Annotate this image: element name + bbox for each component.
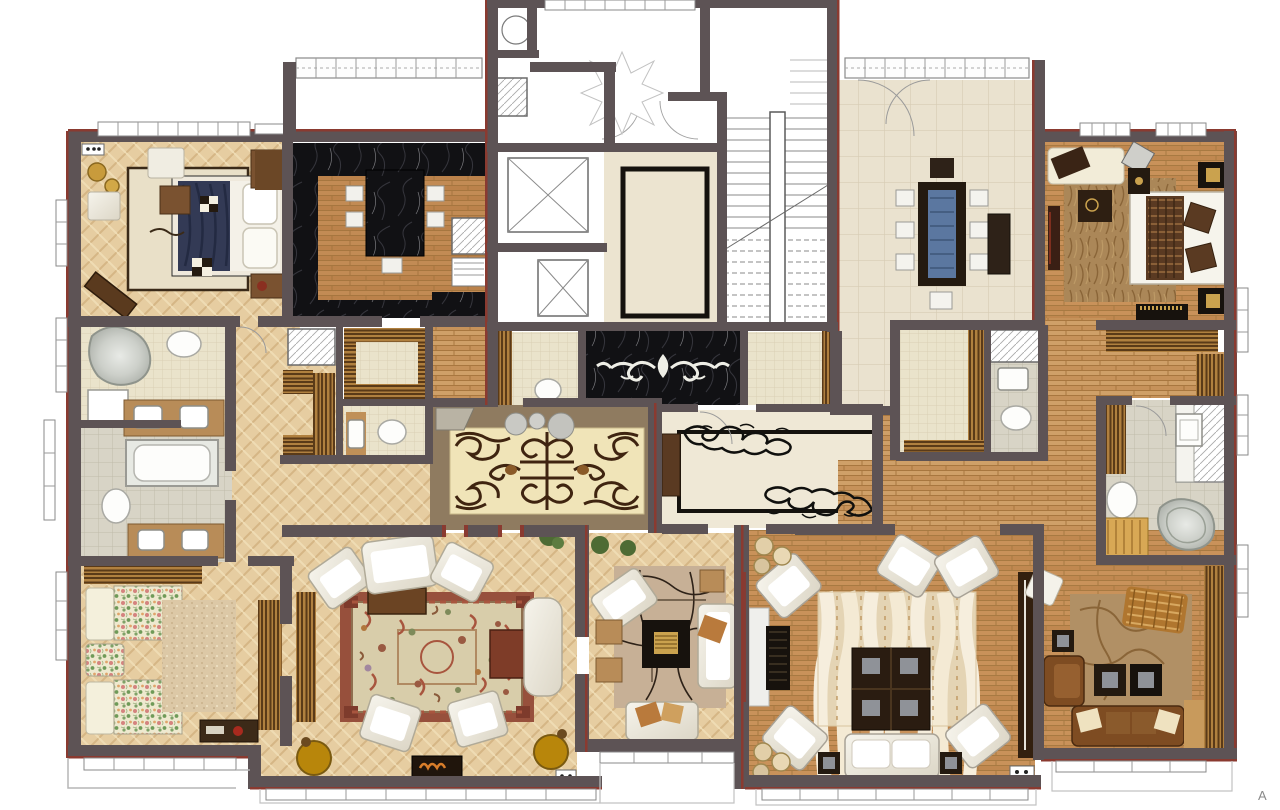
svg-text:A: A	[1258, 788, 1267, 803]
